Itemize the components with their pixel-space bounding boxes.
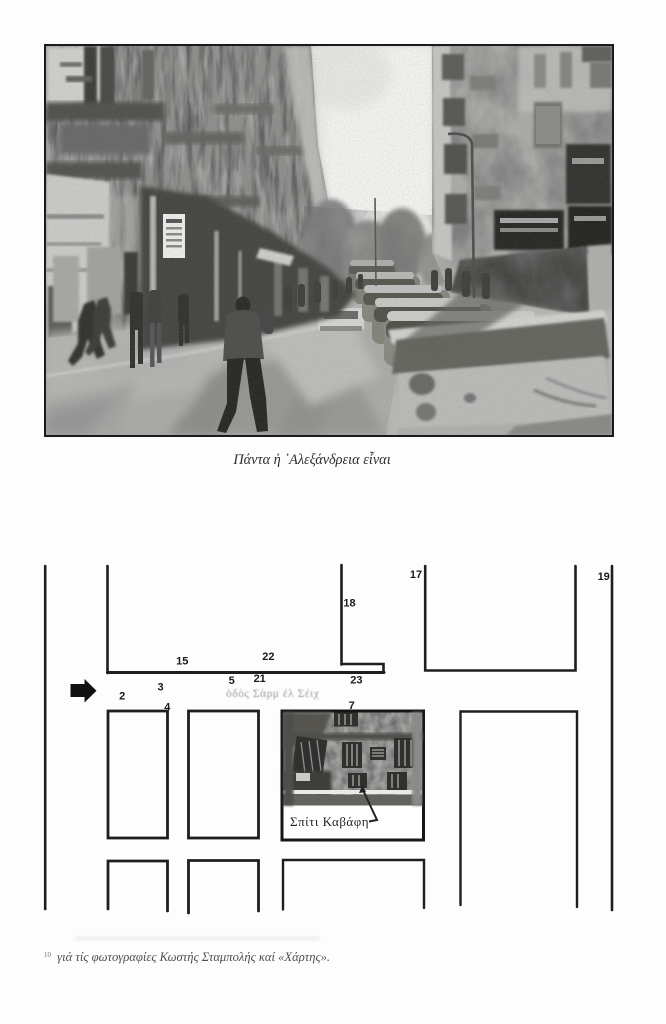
svg-text:3: 3 [157,682,163,694]
svg-text:2: 2 [119,690,125,702]
svg-text:5: 5 [229,675,235,687]
svg-text:21: 21 [254,673,266,685]
svg-text:23: 23 [350,675,362,687]
svg-text:17: 17 [410,569,422,581]
svg-text:19: 19 [598,571,610,583]
svg-text:15: 15 [176,656,188,668]
svg-text:ὁδὸς Σὰρμ ἐλ Σέιχ: ὁδὸς Σὰρμ ἐλ Σέιχ [226,688,320,700]
svg-text:Σπίτι Καβάφη: Σπίτι Καβάφη [290,814,369,829]
svg-text:22: 22 [262,651,274,663]
svg-text:18: 18 [343,598,355,610]
svg-text:4: 4 [164,702,171,714]
